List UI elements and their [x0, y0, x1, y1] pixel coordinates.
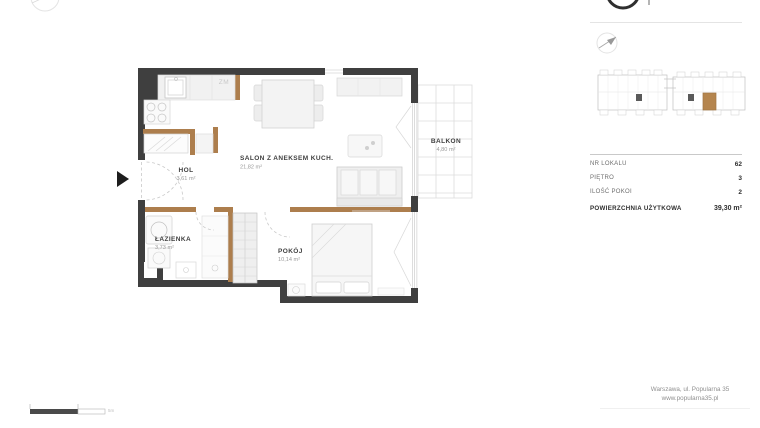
- room-area-balkon: 4,80 m²: [437, 147, 456, 153]
- kitchen-appliance-label: ZM: [219, 79, 229, 86]
- info-row-ilosc-pokoi: ILOŚĆ POKOI 2: [590, 185, 742, 199]
- dining-set: [254, 80, 323, 128]
- address-block: Warszawa, ul. Popularna 35 www.popularna…: [610, 385, 760, 403]
- floorplan-card: ZM: [0, 0, 760, 428]
- info-value: 39,30 m²: [714, 205, 742, 212]
- compass-fragment-icon: [31, 0, 59, 11]
- scale-bar-label: 5m: [108, 408, 115, 413]
- entrance-arrow-icon: [117, 171, 129, 187]
- room-name-balkon: BALKON: [431, 138, 461, 145]
- room-area-hol: 3,61 m²: [177, 176, 196, 182]
- building-siteplan-thumbnail: [598, 70, 745, 115]
- room-area-salon: 21,82 m²: [240, 165, 262, 171]
- info-table-divider: [590, 154, 742, 155]
- website-url: www.popularna35.pl: [610, 394, 760, 403]
- info-label: ILOŚĆ POKOI: [590, 189, 632, 195]
- info-label: PIĘTRO: [590, 175, 614, 181]
- info-label: NR LOKALU: [590, 161, 627, 167]
- room-area-lazienka: 3,73 m²: [155, 245, 174, 251]
- scale-bar: 5m: [30, 404, 115, 414]
- info-row-pietro: PIĘTRO 3: [590, 171, 742, 185]
- room-name-hol: HOL: [179, 167, 194, 174]
- info-row-powierzchnia: POWIERZCHNIA UŻYTKOWA 39,30 m²: [590, 199, 742, 217]
- highlighted-unit: [703, 93, 716, 110]
- address-line: Warszawa, ul. Popularna 35: [610, 385, 760, 394]
- unit-info-table: NR LOKALU 62 PIĘTRO 3 ILOŚĆ POKOI 2 POWI…: [590, 157, 742, 217]
- panel-bottom-divider: [600, 408, 750, 409]
- compass-icon: [597, 33, 617, 53]
- room-name-pokoj: POKÓJ: [278, 246, 303, 255]
- room-name-lazienka: ŁAZIENKA: [155, 236, 191, 243]
- info-value: 62: [735, 161, 742, 168]
- info-value: 3: [738, 175, 742, 182]
- info-value: 2: [738, 189, 742, 196]
- brand-logo-icon: [607, 0, 650, 8]
- room-area-pokoj: 10,14 m²: [278, 257, 300, 263]
- living-room-furniture: [337, 78, 402, 211]
- info-label: POWIERZCHNIA UŻYTKOWA: [590, 205, 682, 212]
- panel-top-divider: [590, 22, 742, 23]
- info-row-nr-lokalu: NR LOKALU 62: [590, 157, 742, 171]
- room-name-salon: SALON Z ANEKSEM KUCH.: [240, 155, 333, 162]
